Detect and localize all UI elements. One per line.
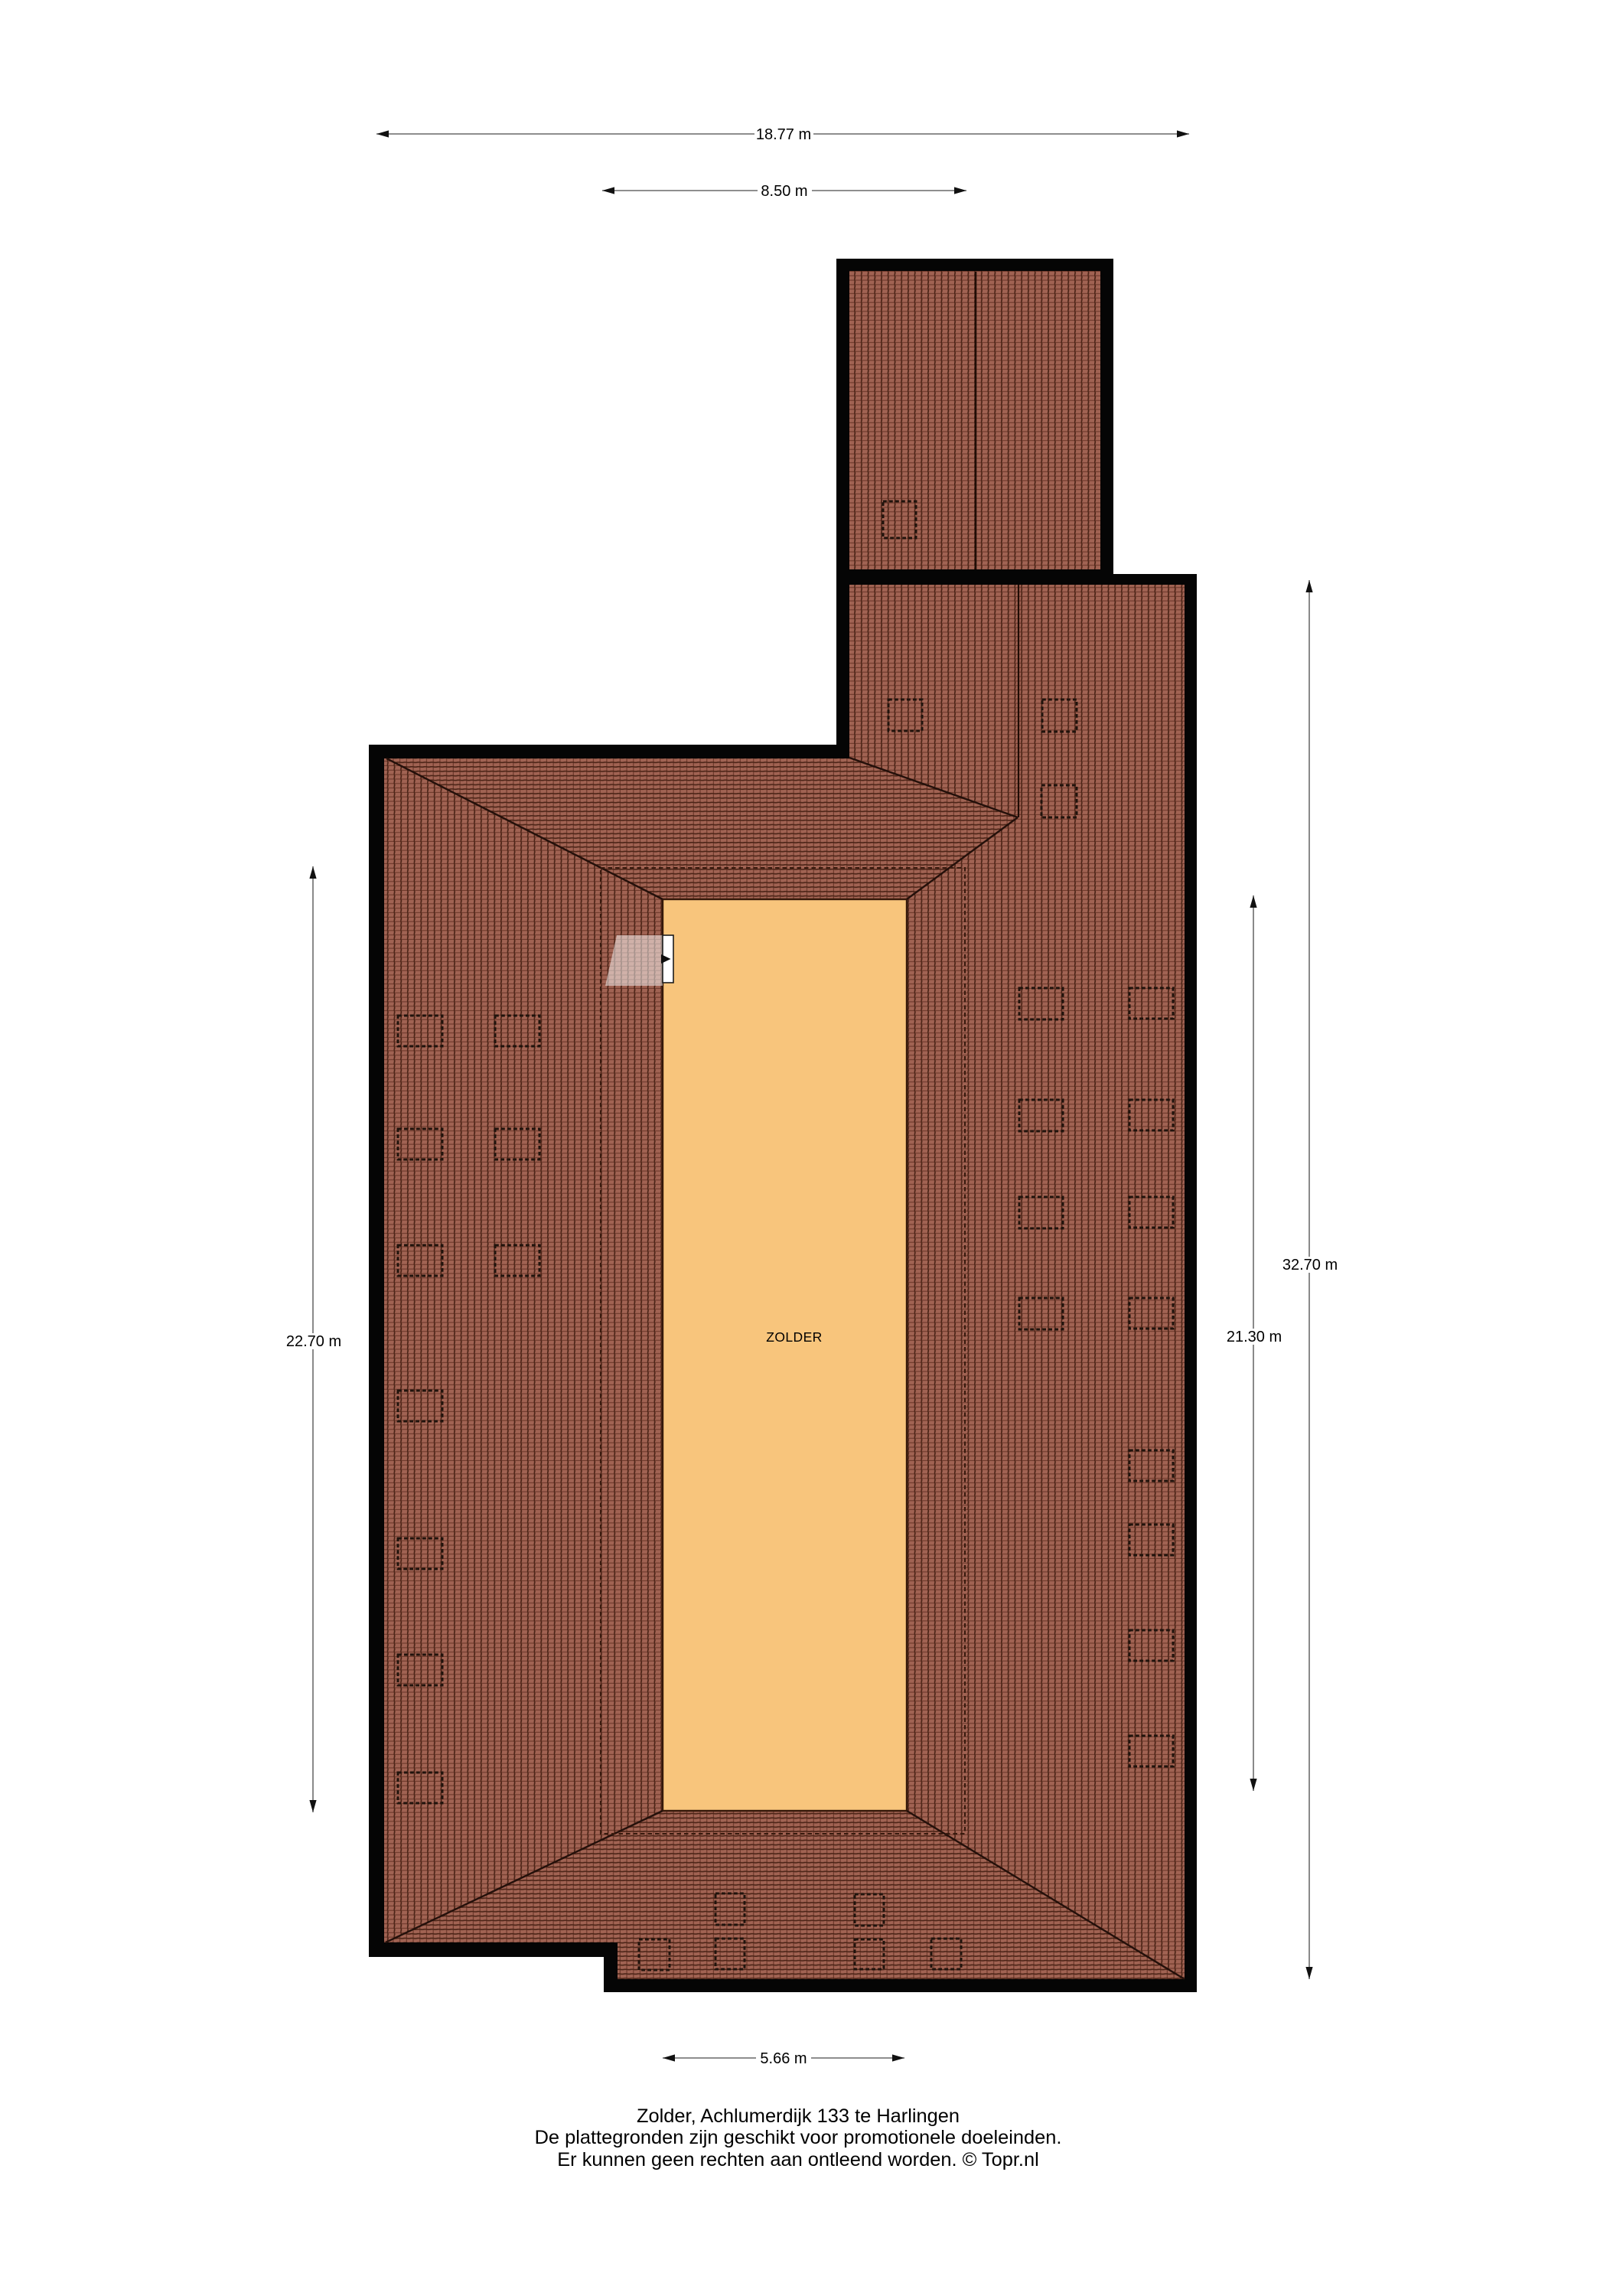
svg-text:Zolder, Achlumerdijk 133 te Ha: Zolder, Achlumerdijk 133 te Harlingen <box>637 2105 960 2127</box>
svg-text:32.70 m: 32.70 m <box>1282 1257 1338 1274</box>
svg-text:ZOLDER: ZOLDER <box>766 1329 822 1345</box>
svg-text:18.77 m: 18.77 m <box>756 126 811 143</box>
svg-text:8.50 m: 8.50 m <box>761 183 807 200</box>
svg-text:22.70 m: 22.70 m <box>286 1333 341 1350</box>
svg-text:5.66 m: 5.66 m <box>760 2050 807 2067</box>
svg-text:De plattegronden zijn geschikt: De plattegronden zijn geschikt voor prom… <box>535 2127 1062 2148</box>
svg-text:Er kunnen geen rechten aan ont: Er kunnen geen rechten aan ontleend word… <box>557 2149 1038 2170</box>
svg-text:21.30 m: 21.30 m <box>1227 1329 1282 1345</box>
